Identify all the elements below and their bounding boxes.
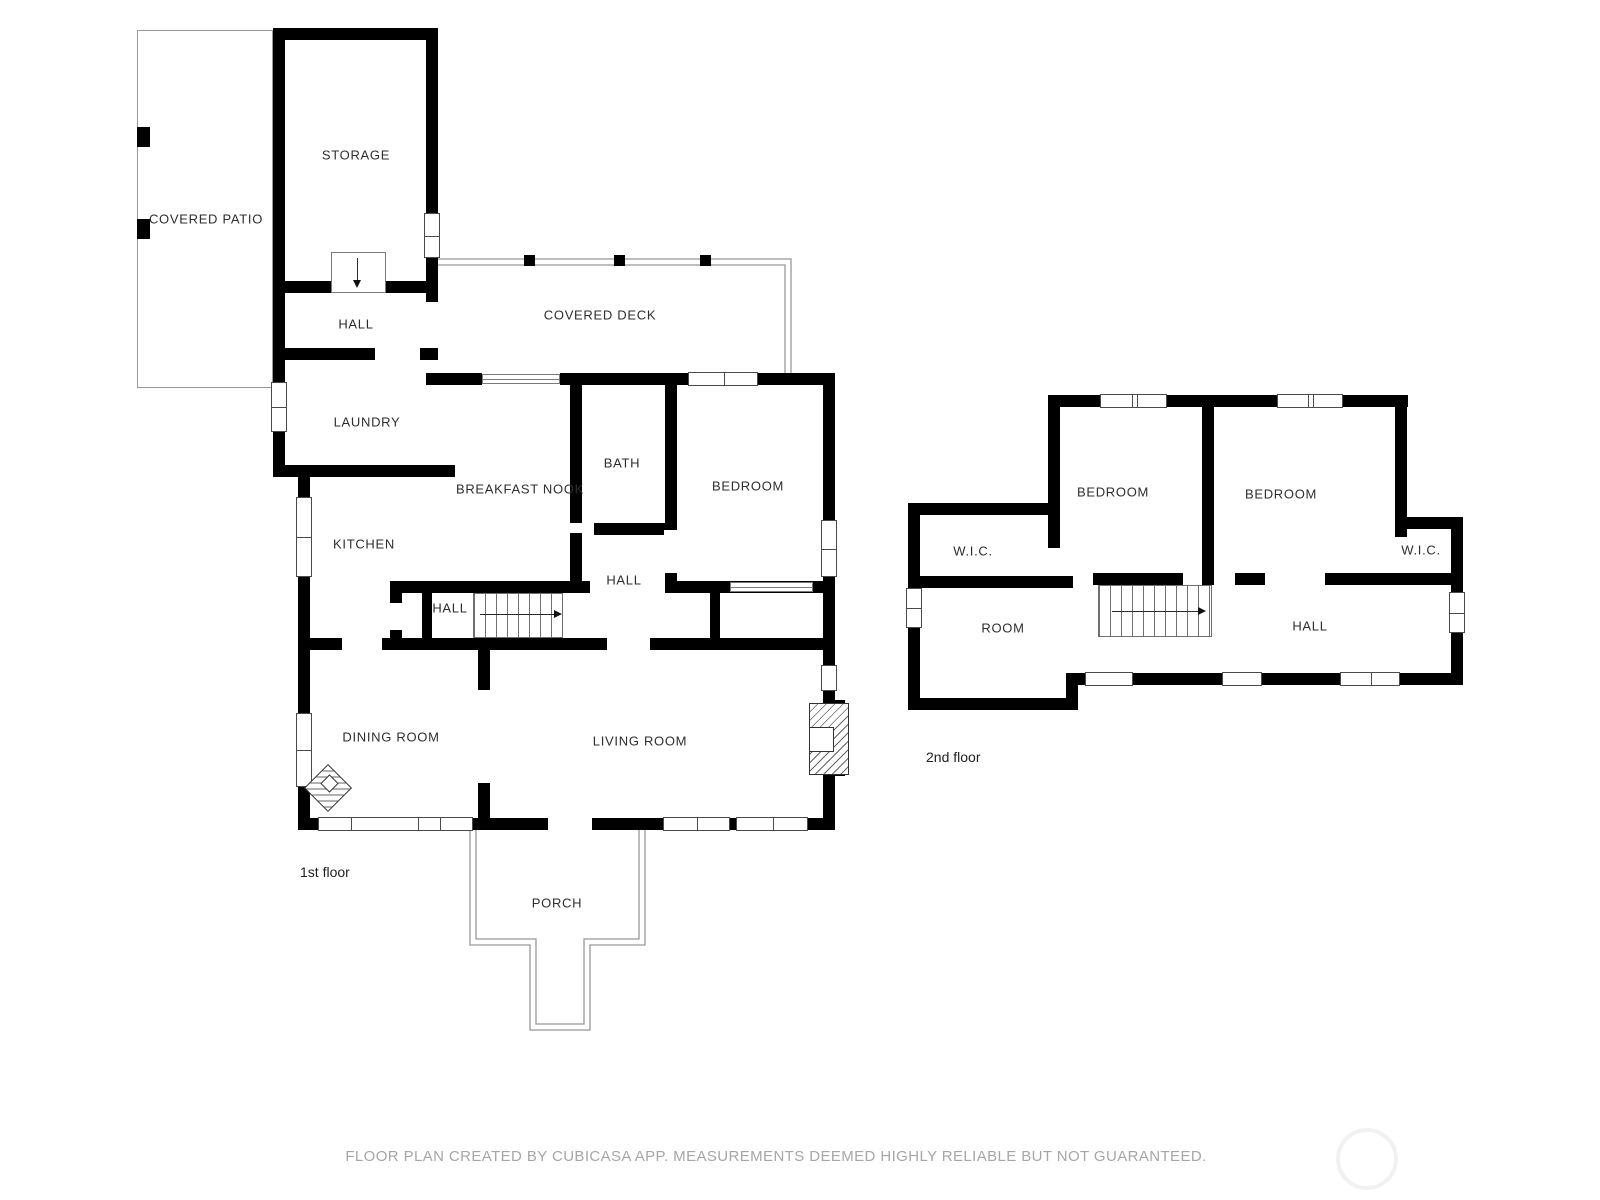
- room-label-porch: PORCH: [532, 896, 582, 911]
- room-label-laundry: LAUNDRY: [334, 415, 401, 430]
- stairs-direction-line: [1112, 611, 1198, 612]
- window: [296, 497, 312, 577]
- fireplace-firebox: [809, 727, 834, 752]
- room-label-hall-stairs: HALL: [432, 601, 467, 616]
- wall: [1235, 573, 1265, 585]
- room-label-storage: STORAGE: [322, 148, 390, 163]
- storage-door-arrow: [357, 258, 358, 280]
- window: [296, 713, 312, 787]
- wall: [570, 533, 582, 581]
- room-label-bedroom-right: BEDROOM: [1245, 487, 1317, 502]
- patio-post: [137, 127, 150, 147]
- room-label-bedroom-left: BEDROOM: [1077, 485, 1149, 500]
- closet-sliding-door: [730, 582, 813, 592]
- wall: [273, 28, 438, 40]
- wall: [273, 348, 375, 360]
- window: [1340, 672, 1400, 686]
- wall: [1048, 503, 1060, 548]
- wall: [426, 28, 438, 302]
- window: [1222, 672, 1262, 686]
- wall: [390, 630, 402, 638]
- room-label-wic-left: W.I.C.: [953, 544, 993, 559]
- deck-sliding-door: [482, 374, 560, 384]
- window: [1449, 592, 1465, 633]
- window: [271, 382, 287, 432]
- window: [1277, 394, 1343, 408]
- room-label-hall-upper: HALL: [338, 317, 373, 332]
- arrow-down-icon: [353, 280, 361, 288]
- wall: [1395, 395, 1407, 537]
- room-label-covered-patio: COVERED PATIO: [149, 212, 263, 227]
- wall: [478, 783, 490, 830]
- wall: [273, 465, 455, 477]
- porch-doorway: [548, 818, 592, 830]
- room-label-dining-room: DINING ROOM: [342, 730, 439, 745]
- arrow-right-icon: [554, 610, 562, 618]
- wall: [594, 523, 665, 535]
- wall: [908, 576, 1073, 588]
- wall: [1451, 517, 1463, 577]
- floor2-name-label: 2nd floor: [926, 749, 980, 765]
- window: [1085, 672, 1133, 686]
- window: [424, 213, 440, 258]
- room-label-living-room: LIVING ROOM: [593, 734, 687, 749]
- wall: [478, 650, 490, 690]
- wall: [710, 593, 720, 638]
- stairs: [473, 593, 563, 638]
- window: [440, 817, 473, 831]
- window: [318, 817, 447, 831]
- wall: [650, 638, 835, 650]
- wall: [1202, 395, 1214, 585]
- wall: [1093, 573, 1183, 585]
- cubicasa-watermark: [1336, 1128, 1398, 1190]
- door-opening: [664, 530, 678, 573]
- room-label-bedroom: BEDROOM: [712, 479, 784, 494]
- room-label-room: ROOM: [981, 621, 1024, 636]
- room-label-hall: HALL: [1292, 619, 1327, 634]
- wall: [385, 281, 438, 293]
- wall: [390, 581, 590, 593]
- wall: [273, 281, 332, 293]
- wall: [420, 348, 438, 360]
- window: [821, 665, 837, 691]
- room-label-bath: BATH: [604, 456, 641, 471]
- wall: [426, 373, 482, 385]
- wall: [298, 638, 342, 650]
- floor-plan-canvas: COVERED PATIO STORAGE HALL COVERED DECK …: [0, 0, 1600, 1200]
- wall: [570, 373, 582, 523]
- room-label-breakfast-nook: BREAKFAST NOOK: [456, 482, 584, 497]
- wall: [382, 638, 473, 650]
- wall: [908, 698, 1078, 710]
- floor1-name-label: 1st floor: [300, 864, 350, 880]
- window: [688, 372, 758, 386]
- room-label-kitchen: KITCHEN: [333, 537, 395, 552]
- arrow-right-icon: [1198, 607, 1206, 615]
- window: [906, 588, 922, 628]
- stairs-direction-line: [480, 614, 554, 615]
- wall: [1048, 395, 1060, 515]
- wall: [390, 593, 402, 603]
- window: [1100, 394, 1167, 408]
- window: [663, 817, 730, 831]
- room-label-wic-right: W.I.C.: [1401, 543, 1441, 558]
- covered-patio-outline: [137, 30, 273, 388]
- wall: [1325, 573, 1407, 585]
- wall: [422, 593, 432, 638]
- footer-disclaimer: FLOOR PLAN CREATED BY CUBICASA APP. MEAS…: [0, 1148, 1552, 1165]
- room-label-hall-center: HALL: [606, 573, 641, 588]
- window: [736, 817, 808, 831]
- window: [821, 520, 837, 577]
- wall: [473, 638, 607, 650]
- room-label-covered-deck: COVERED DECK: [544, 308, 656, 323]
- wall: [908, 503, 1060, 515]
